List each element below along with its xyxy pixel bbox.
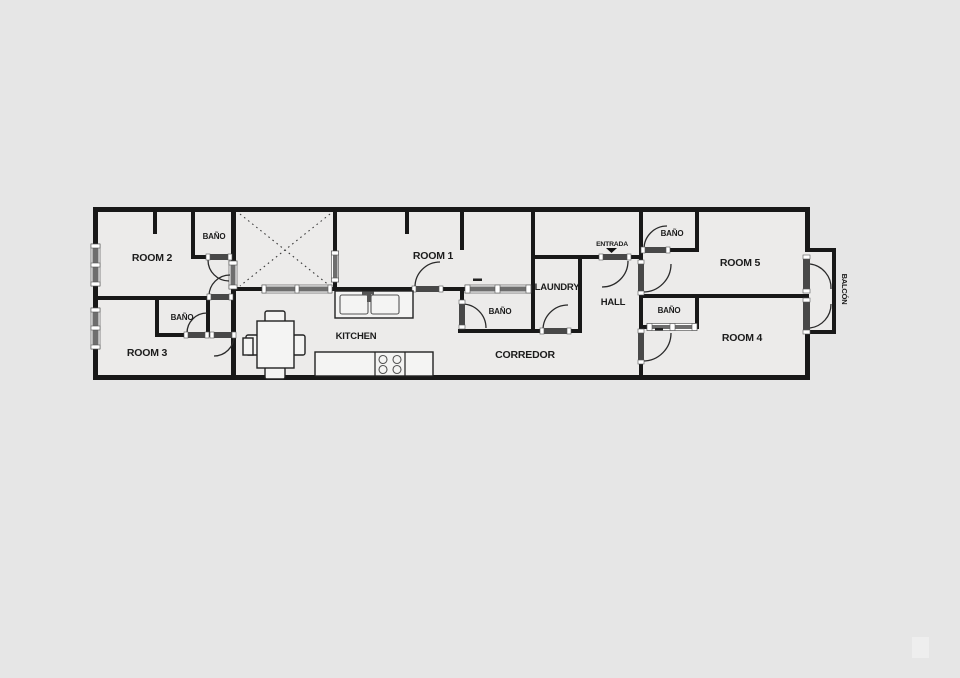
- wall-segment: [153, 207, 157, 234]
- wall-segment: [578, 257, 582, 333]
- window-cap: [332, 251, 339, 255]
- door-leaf: [209, 294, 231, 300]
- wall-segment: [460, 207, 464, 250]
- door-hinge: [540, 328, 544, 334]
- window-vestibule-patio: [229, 261, 237, 289]
- door-hinge: [232, 332, 236, 338]
- wall-segment: [832, 248, 836, 334]
- label-kitchen: KITCHEN: [336, 331, 377, 342]
- balcony-floor: [807, 250, 834, 332]
- wall-segment: [191, 207, 195, 259]
- label-bath-3: BAÑO: [489, 307, 512, 316]
- label-corredor: CORREDOR: [495, 349, 555, 361]
- door-leaf: [803, 257, 810, 291]
- door-hinge: [803, 255, 810, 259]
- door-hinge: [641, 247, 645, 253]
- door-hinge: [206, 254, 210, 260]
- window-patio-bottom: [262, 285, 332, 293]
- door-hinge: [803, 330, 810, 334]
- floor-plan-canvas: ROOM 2 ROOM 3 ROOM 1 ROOM 5 ROOM 4 BAÑO …: [0, 0, 960, 678]
- wall-segment: [695, 207, 699, 252]
- wall-segment: [666, 248, 699, 252]
- door-hinge: [210, 332, 214, 338]
- window-bath-room4: [647, 324, 697, 331]
- wall-segment: [531, 255, 603, 259]
- window-room2-left: [91, 244, 100, 286]
- window-cap: [229, 261, 237, 265]
- door-leaf: [212, 332, 234, 338]
- wall-segment: [805, 330, 810, 380]
- window-cap: [91, 345, 100, 349]
- door-hinge: [228, 254, 232, 260]
- window-cap: [495, 285, 500, 293]
- window-cap: [262, 285, 266, 293]
- window-cap: [332, 278, 339, 282]
- label-room3: ROOM 3: [127, 347, 168, 359]
- label-bath-1: BAÑO: [203, 232, 226, 241]
- door-hinge: [207, 294, 211, 300]
- wall-segment: [639, 294, 809, 298]
- door-hinge: [638, 260, 644, 264]
- wall-segment: [805, 207, 810, 252]
- label-bath-2: BAÑO: [171, 313, 194, 322]
- door-hinge: [666, 247, 670, 253]
- door-hinge: [803, 289, 810, 293]
- label-room4: ROOM 4: [722, 332, 763, 344]
- wall-segment: [805, 248, 836, 252]
- window-glass: [333, 253, 338, 280]
- door-leaf: [803, 300, 810, 333]
- door-hinge: [627, 254, 631, 260]
- table-top: [257, 321, 294, 368]
- faucet-icon: [367, 292, 371, 302]
- door-hinge: [205, 332, 209, 338]
- label-balcon: BALCÓN: [840, 274, 849, 305]
- door-hinge: [567, 328, 571, 334]
- door-hinge: [184, 332, 188, 338]
- door-leaf: [643, 247, 668, 253]
- window-patio-right: [332, 251, 339, 282]
- label-entrada: ENTRADA: [596, 241, 628, 248]
- window-bath-middle: [465, 285, 531, 293]
- door-hinge: [459, 325, 465, 329]
- window-cap: [526, 285, 531, 293]
- chair: [293, 335, 305, 355]
- window-cap: [91, 308, 100, 312]
- label-hall: HALL: [601, 297, 626, 308]
- window-cap: [91, 244, 100, 248]
- window-cap: [692, 324, 697, 331]
- wall-segment: [155, 333, 188, 337]
- wall-segment: [93, 375, 810, 380]
- wall-segment: [639, 207, 643, 263]
- label-bath-5: BAÑO: [658, 306, 681, 315]
- window-room3-left: [91, 308, 100, 349]
- chair: [265, 367, 285, 379]
- door-hinge: [229, 294, 233, 300]
- wall-segment: [155, 298, 159, 337]
- wall-segment: [531, 207, 535, 333]
- window-cap: [229, 285, 237, 289]
- door-leaf: [208, 254, 230, 260]
- window-cap: [465, 285, 470, 293]
- wall-segment: [93, 207, 810, 212]
- kitchen-appliance: [243, 338, 253, 355]
- door-leaf: [542, 328, 569, 334]
- wall-segment: [93, 207, 98, 380]
- door-leaf: [459, 302, 465, 327]
- window-cap: [295, 285, 299, 293]
- door-leaf: [601, 254, 629, 260]
- wall-segment: [206, 298, 210, 337]
- window-cap: [91, 326, 100, 330]
- door-hinge: [599, 254, 603, 260]
- door-hinge: [638, 291, 644, 295]
- door-leaf: [638, 331, 644, 362]
- window-glass: [231, 263, 236, 287]
- window-cap: [647, 324, 652, 331]
- door-hinge: [803, 298, 810, 302]
- wall-segment: [458, 329, 544, 333]
- label-room5: ROOM 5: [720, 257, 761, 269]
- label-room1: ROOM 1: [413, 250, 454, 262]
- label-room2: ROOM 2: [132, 252, 173, 264]
- door-hinge: [459, 300, 465, 304]
- watermark-smudge: [912, 637, 929, 658]
- door-hinge: [638, 360, 644, 364]
- window-cap: [91, 282, 100, 286]
- door-leaf: [414, 286, 441, 292]
- label-bath-4: BAÑO: [661, 229, 684, 238]
- window-cap: [670, 324, 675, 331]
- kitchen-sink: [335, 291, 413, 318]
- window-cap: [91, 263, 100, 267]
- wall-mark: [473, 279, 482, 282]
- wall-segment: [93, 296, 211, 300]
- wall-segment: [405, 207, 409, 234]
- label-laundry: LAUNDRY: [535, 282, 581, 293]
- wall-segment: [695, 294, 699, 328]
- door-hinge: [638, 329, 644, 333]
- door-leaf: [638, 262, 644, 293]
- kitchen-stove: [315, 352, 433, 376]
- door-hinge: [439, 286, 443, 292]
- door-leaf: [186, 332, 207, 338]
- window-cap: [328, 285, 332, 293]
- stove-counter: [315, 352, 433, 376]
- wall-mark: [655, 328, 663, 331]
